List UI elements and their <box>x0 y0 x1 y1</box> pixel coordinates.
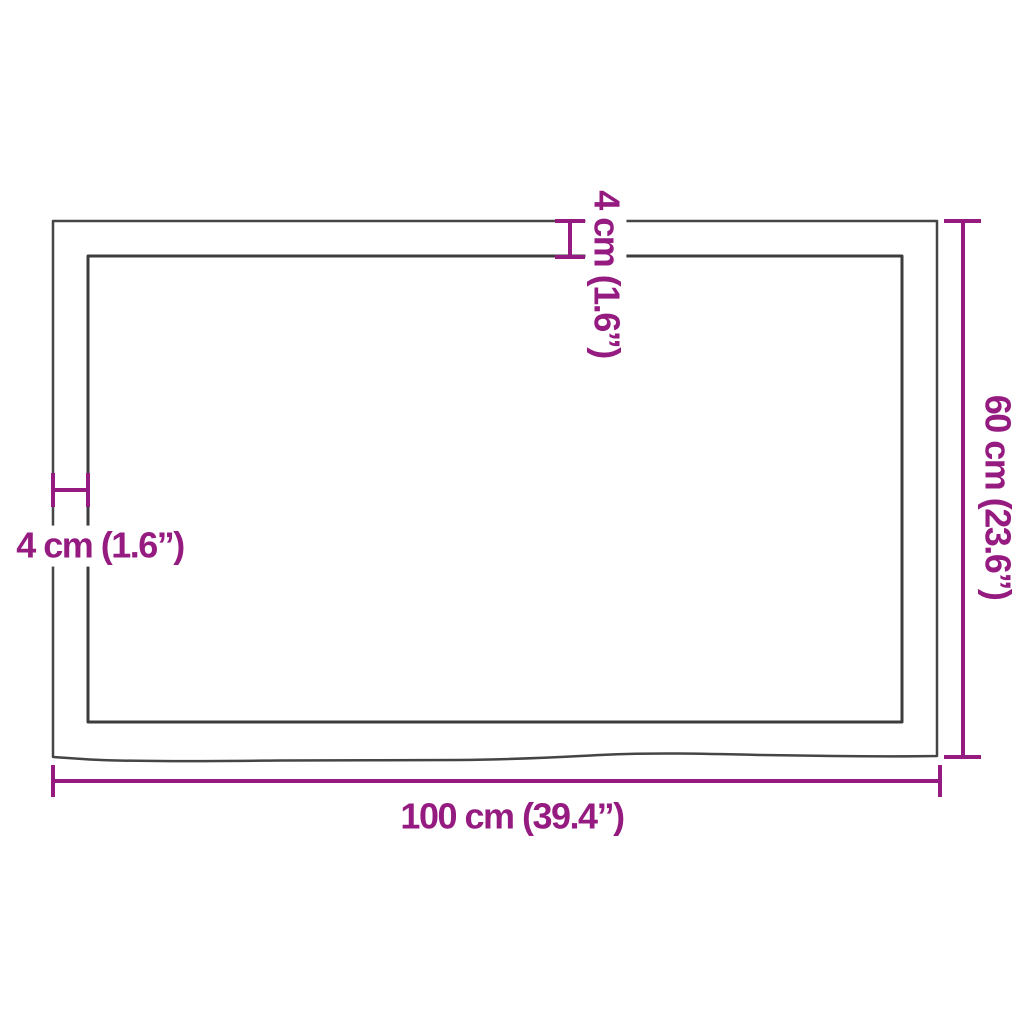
height-dimension-label: 60 cm (23.6”) <box>977 389 1018 606</box>
board-outer-outline <box>53 221 937 761</box>
thickness-dimension-label-top: 4 cm (1.6”) <box>586 184 627 364</box>
height-dimension-line <box>944 221 981 757</box>
board-inner-edge <box>88 256 902 722</box>
edge-dimension-label-left: 4 cm (1.6”) <box>10 526 190 567</box>
thickness-dimension-marker-top <box>555 221 585 257</box>
width-dimension-line <box>53 765 940 797</box>
edge-dimension-marker-left <box>53 473 88 507</box>
dimension-diagram: 4 cm (1.6”) 4 cm (1.6”) 60 cm (23.6”) 10… <box>0 0 1024 1024</box>
width-dimension-label: 100 cm (39.4”) <box>394 797 629 838</box>
diagram-linework <box>0 0 1024 1024</box>
